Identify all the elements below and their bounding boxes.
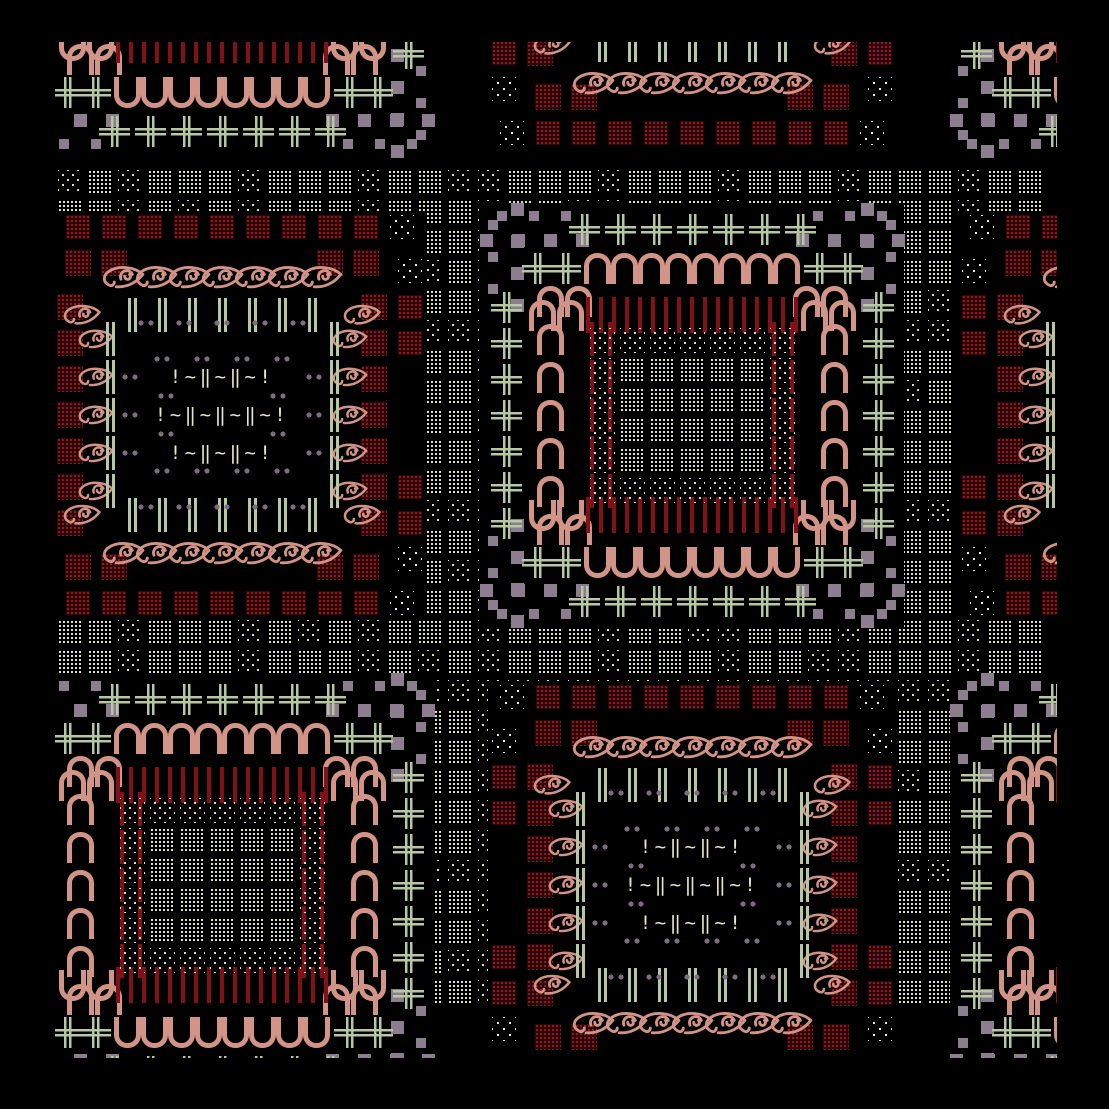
stipple-block [268, 170, 292, 194]
stipple-block [358, 650, 382, 674]
double-bar [330, 322, 339, 356]
stipple-block [282, 215, 306, 239]
stipple-block [868, 42, 892, 65]
dot-pair [608, 790, 624, 796]
red-bar [207, 42, 211, 63]
hash-cross-icon [832, 547, 863, 578]
stipple-block [536, 685, 560, 709]
stipple-block [448, 380, 472, 404]
double-bar [106, 360, 115, 394]
stipple-block [598, 170, 622, 194]
stipple-block [598, 650, 622, 674]
stipple-block [174, 215, 198, 239]
stipple-block [390, 591, 414, 615]
mauve-square [480, 584, 493, 597]
stipple-block [658, 170, 682, 194]
hash-cross-icon [279, 116, 310, 147]
stipple-block [710, 418, 735, 443]
stipple-block [650, 448, 675, 473]
stipple-block [928, 260, 952, 284]
mauve-square [422, 704, 435, 717]
hash-cross-icon [135, 684, 166, 715]
dot-pair [274, 356, 290, 362]
stipple-block [492, 765, 516, 789]
stipple-block [823, 1024, 849, 1050]
arch-icon [557, 300, 584, 331]
arch-icon [359, 970, 386, 1001]
mauve-square [416, 690, 426, 700]
stipple-block [210, 858, 235, 883]
arch-icon [59, 770, 86, 801]
stipple-block [688, 650, 712, 674]
double-bar [688, 42, 697, 62]
stipple-block [928, 200, 952, 224]
hash-cross-icon [569, 586, 600, 617]
stipple-block [628, 650, 652, 674]
mauve-square [981, 145, 994, 158]
eye-icon [812, 972, 851, 998]
mauve-square [422, 1054, 435, 1059]
dot-pair [744, 826, 760, 832]
stipple-block [448, 350, 472, 374]
arch-icon [59, 970, 86, 1001]
dot-pair [624, 826, 640, 832]
arch-icon [359, 770, 386, 801]
stipple-block [838, 650, 862, 674]
hash-cross-icon [804, 547, 835, 578]
stipple-block [448, 890, 472, 914]
hash-cross-icon [550, 253, 581, 284]
eye-icon [769, 1009, 813, 1038]
stipple-block [238, 650, 262, 674]
stipple-block [680, 685, 704, 709]
double-bar [576, 868, 585, 902]
hash-cross-icon [393, 906, 424, 937]
double-bar [278, 498, 287, 532]
eye-icon [532, 42, 571, 58]
arch-icon [638, 253, 665, 284]
stipple-block [928, 350, 952, 374]
stipple-block [398, 295, 422, 319]
hash-cross-icon [393, 870, 424, 901]
double-bar [106, 398, 115, 432]
double-bar [158, 498, 167, 532]
stipple-block [238, 170, 262, 194]
arch-icon [829, 500, 856, 531]
arch-icon [537, 400, 564, 431]
eye-icon [1002, 502, 1041, 528]
mauve-square [958, 1038, 968, 1048]
stipple-block [962, 475, 986, 499]
arch-icon [87, 970, 114, 1001]
stipple-block [418, 620, 442, 644]
eye-icon [1041, 539, 1057, 568]
stipple-block [718, 650, 742, 674]
double-bar [800, 944, 809, 978]
arch-icon [331, 970, 358, 1001]
mauve-square [497, 211, 507, 221]
hash-cross-icon [961, 906, 992, 937]
hash-cross-icon [171, 116, 202, 147]
stipple-block [448, 620, 472, 644]
hash-cross-icon [362, 1017, 393, 1048]
hash-cross-icon [863, 292, 894, 323]
stipple-block [710, 388, 735, 413]
mauve-square [950, 1054, 963, 1059]
stipple-block [58, 170, 82, 194]
stipple-block [962, 295, 986, 319]
stipple-block [210, 888, 235, 913]
dot-pair [252, 504, 268, 510]
stipple-block [824, 685, 848, 709]
double-bar [576, 944, 585, 978]
stipple-block [650, 418, 675, 443]
stipple-block [118, 170, 142, 194]
double-bar [598, 42, 607, 62]
hash-cross-icon [243, 116, 274, 147]
arch-icon [331, 770, 358, 801]
red-bar [233, 42, 237, 63]
double-bar [188, 298, 197, 332]
arch-icon [537, 438, 564, 469]
arch-icon [1007, 908, 1034, 939]
stipple-block [928, 710, 952, 734]
stipple-block [928, 620, 952, 644]
hash-cross-icon [135, 116, 166, 147]
stipple-block [148, 650, 172, 674]
stipple-block [240, 828, 265, 853]
stipple-block [240, 888, 265, 913]
stipple-block [928, 410, 952, 434]
eye-icon [769, 733, 813, 762]
arch-icon [114, 1017, 141, 1048]
stipple-block [898, 860, 922, 884]
arch-icon [351, 832, 378, 863]
stipple-block [492, 981, 516, 1005]
arch-icon [719, 253, 746, 284]
dot-pair [138, 504, 154, 510]
arch-icon [829, 300, 856, 331]
double-bar [218, 298, 227, 332]
dot-pair [744, 938, 760, 944]
stipple-block [928, 590, 952, 614]
mauve-square [358, 1054, 371, 1059]
dot-pair [306, 374, 322, 380]
stipple-block [988, 170, 1012, 194]
eye-icon [1002, 302, 1041, 328]
eye-icon [532, 972, 571, 998]
red-bar [324, 767, 328, 803]
stipple-block [928, 290, 952, 314]
hash-cross-icon [362, 77, 393, 108]
double-bar [778, 968, 787, 1002]
stipple-block [354, 215, 378, 239]
stipple-block [240, 858, 265, 883]
center-text: !~‖~‖~! [170, 441, 275, 465]
stipple-block [868, 650, 892, 674]
arch-icon [999, 970, 1026, 1001]
stipple-block [838, 170, 862, 194]
hash-cross-icon [55, 1017, 83, 1048]
stipple-block [868, 729, 892, 753]
stipple-block [590, 328, 615, 353]
arch-icon [999, 770, 1026, 801]
center-text: !~‖~‖~! [170, 365, 275, 389]
stipple-block [928, 890, 952, 914]
hash-cross-icon [315, 1056, 346, 1059]
stipple-block [535, 1024, 561, 1050]
stipple-block [608, 121, 632, 145]
mauve-square [845, 609, 855, 619]
arch-icon [222, 1017, 249, 1048]
stipple-block [120, 888, 145, 913]
stipple-block [58, 650, 82, 674]
stipple-block [778, 650, 802, 674]
stipple-block [300, 888, 325, 913]
stipple-block [868, 170, 892, 194]
arch-icon [351, 870, 378, 901]
stipple-block [770, 328, 795, 353]
mauve-square [981, 705, 994, 718]
dot-pair [722, 974, 738, 980]
stipple-block [138, 591, 162, 615]
arch-icon [67, 870, 94, 901]
stipple-block [448, 260, 472, 284]
hash-cross-icon [491, 328, 522, 359]
dot-pair [154, 356, 170, 362]
dot-pair [608, 974, 624, 980]
dot-pair [760, 974, 776, 980]
arch-icon [59, 42, 86, 61]
stipple-block [492, 42, 516, 65]
stipple-block [824, 121, 848, 145]
stipple-block [210, 591, 234, 615]
double-bar [330, 436, 339, 470]
dot-pair [234, 356, 250, 362]
hash-cross-icon [393, 762, 424, 793]
stipple-block [898, 680, 922, 704]
center-text: !~‖~‖~‖~! [625, 873, 759, 897]
red-bar [298, 42, 302, 63]
hash-cross-icon [279, 1056, 310, 1059]
arch-icon [168, 723, 195, 754]
mauve-square [861, 583, 874, 596]
hash-cross-icon [334, 77, 365, 108]
red-bar [194, 42, 198, 63]
hash-cross-icon [863, 400, 894, 431]
stipple-block [448, 680, 472, 704]
double-bar [628, 968, 637, 1002]
mauve-square [544, 234, 557, 247]
hash-cross-icon [863, 508, 894, 539]
hash-cross-icon [207, 1056, 238, 1059]
dot-pair [158, 431, 174, 437]
hash-cross-icon [550, 547, 581, 578]
stipple-block [300, 798, 325, 823]
stipple-block [300, 918, 325, 943]
stipple-block [928, 830, 952, 854]
double-bar [1046, 322, 1055, 356]
eye-icon [532, 772, 571, 798]
double-bar [158, 298, 167, 332]
dot-pair [290, 504, 306, 510]
hash-cross-icon [171, 1056, 202, 1059]
double-bar [308, 498, 317, 532]
stipple-block [448, 920, 472, 944]
arch-icon [1007, 870, 1034, 901]
stipple-block [298, 170, 322, 194]
eye-icon [769, 69, 813, 98]
stipple-block [388, 170, 412, 194]
stipple-block [710, 478, 735, 503]
stipple-block [590, 448, 615, 473]
double-bar [800, 868, 809, 902]
hash-cross-icon [1039, 116, 1058, 147]
double-bar [576, 830, 585, 864]
hash-cross-icon [491, 400, 522, 431]
dot-pair [646, 974, 662, 980]
stipple-block [180, 828, 205, 853]
mauve-square [886, 252, 896, 262]
arch-icon [692, 547, 719, 578]
mauve-square [511, 235, 524, 248]
stipple-block [88, 650, 112, 674]
red-bar [1056, 767, 1057, 803]
mauve-square [480, 234, 493, 247]
dot-pair [176, 504, 192, 510]
mauve-square [488, 220, 498, 230]
stipple-block [808, 170, 832, 194]
mauve-square [892, 584, 905, 597]
stipple-block [448, 170, 472, 194]
stipple-block [650, 388, 675, 413]
arch-icon [1027, 970, 1054, 1001]
arch-icon [719, 547, 746, 578]
hash-cross-icon [605, 214, 636, 245]
artwork-canvas: !~‖~‖~!!~‖~‖~‖~!!~‖~‖~!!~‖~‖~!!~‖~‖~‖~!!… [0, 0, 1109, 1109]
hash-cross-icon [677, 586, 708, 617]
stipple-block [120, 798, 145, 823]
stipple-block [240, 948, 265, 973]
hash-cross-icon [961, 42, 992, 69]
dot-pair [624, 938, 640, 944]
stipple-block [358, 620, 382, 644]
arch-icon [114, 77, 141, 108]
hash-cross-icon [80, 723, 111, 754]
hash-cross-icon [393, 42, 424, 69]
stipple-block [388, 620, 412, 644]
stipple-block [418, 650, 442, 674]
dot-pair [704, 938, 720, 944]
stipple-block [860, 685, 884, 709]
stipple-block [270, 918, 295, 943]
hash-cross-icon [522, 253, 553, 284]
stipple-block [644, 685, 668, 709]
eye-icon [342, 302, 381, 328]
stipple-block [868, 77, 892, 101]
stipple-block [928, 320, 952, 344]
mauve-square [861, 235, 874, 248]
eye-icon [62, 502, 101, 528]
center-text: !~‖~‖~‖~! [155, 403, 289, 427]
stipple-block [448, 560, 472, 584]
stipple-block [448, 980, 472, 1004]
mauve-square [416, 130, 426, 140]
mauve-square [958, 98, 968, 108]
hash-cross-icon [749, 214, 780, 245]
dot-pair [214, 320, 230, 326]
pattern-layer: !~‖~‖~!!~‖~‖~‖~!!~‖~‖~!!~‖~‖~!!~‖~‖~‖~!!… [55, 42, 1057, 1058]
stipple-block [240, 918, 265, 943]
dot-pair [776, 844, 792, 850]
stipple-block [620, 358, 645, 383]
hash-cross-icon [1020, 1017, 1051, 1048]
stipple-block [788, 685, 812, 709]
double-bar [128, 498, 137, 532]
hash-cross-icon [491, 364, 522, 395]
red-bar [155, 42, 159, 63]
stipple-block [928, 470, 952, 494]
stipple-block [210, 215, 234, 239]
mauve-square [1014, 704, 1027, 717]
mauve-square [529, 211, 539, 221]
stipple-block [808, 650, 832, 674]
arch-icon [611, 253, 638, 284]
double-bar [778, 768, 787, 802]
stipple-block [620, 448, 645, 473]
double-bar [576, 906, 585, 940]
stipple-block [448, 800, 472, 824]
stipple-block [1006, 591, 1030, 615]
stipple-block [448, 950, 472, 974]
arch-icon [359, 42, 386, 61]
stipple-block [710, 358, 735, 383]
red-bar [272, 42, 276, 63]
arch-icon [611, 547, 638, 578]
double-bar [628, 42, 637, 62]
stipple-block [390, 215, 414, 239]
stipple-block [178, 170, 202, 194]
arch-icon [195, 723, 222, 754]
hash-cross-icon [749, 586, 780, 617]
arch-icon [141, 723, 168, 754]
stipple-block [770, 478, 795, 503]
mauve-square [416, 1038, 426, 1048]
stipple-block [620, 478, 645, 503]
stipple-block [868, 801, 892, 825]
stipple-block [270, 948, 295, 973]
stipple-block [538, 650, 562, 674]
stipple-block [770, 448, 795, 473]
stipple-block [180, 888, 205, 913]
double-bar [576, 792, 585, 826]
hash-cross-icon [334, 1017, 365, 1048]
stipple-block [688, 170, 712, 194]
stipple-block [246, 215, 270, 239]
eye-icon [812, 42, 851, 58]
dot-pair [740, 901, 756, 907]
stipple-block [898, 170, 922, 194]
double-bar [748, 968, 757, 1002]
stipple-block [102, 591, 126, 615]
stipple-block [300, 828, 325, 853]
mauve-square [391, 673, 404, 686]
stipple-block [1005, 554, 1031, 580]
red-bar [794, 297, 798, 333]
stipple-block [268, 620, 292, 644]
stipple-block [680, 121, 704, 145]
hash-cross-icon [961, 870, 992, 901]
